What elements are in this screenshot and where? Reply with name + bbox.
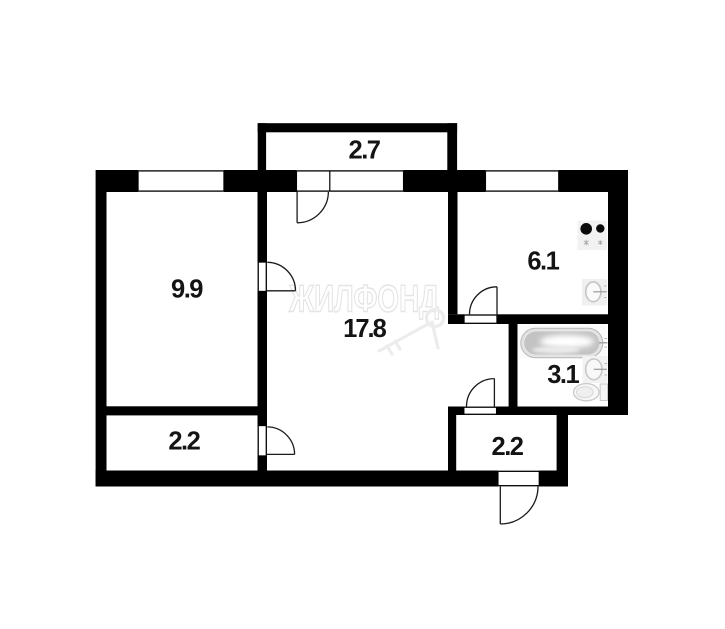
svg-text:3.1: 3.1 xyxy=(547,361,579,389)
svg-text:2.2: 2.2 xyxy=(492,433,524,461)
svg-text:17.8: 17.8 xyxy=(343,315,386,343)
svg-text:2.2: 2.2 xyxy=(168,428,200,456)
svg-text:2.7: 2.7 xyxy=(349,137,381,165)
svg-text:9.9: 9.9 xyxy=(171,275,203,303)
svg-text:6.1: 6.1 xyxy=(527,247,559,275)
